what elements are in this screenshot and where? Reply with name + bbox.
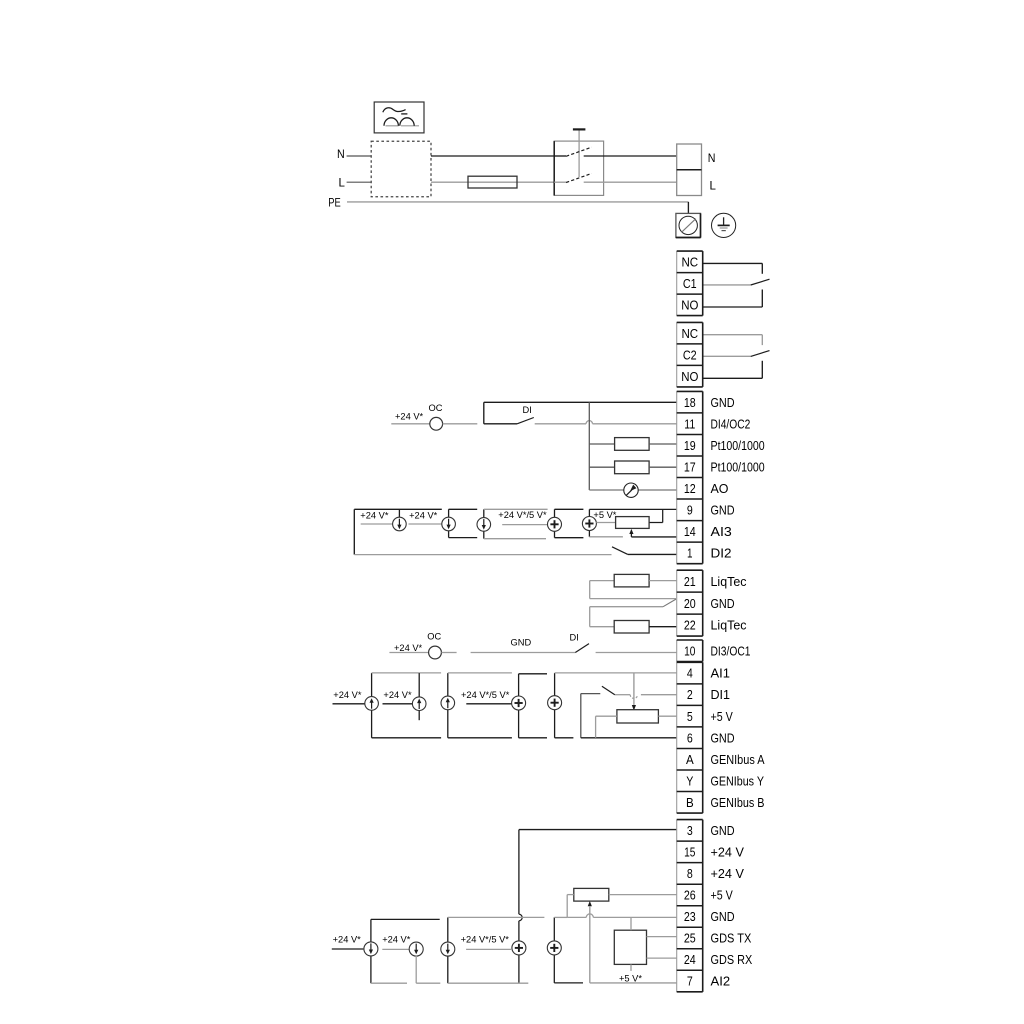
- svg-text:NO: NO: [681, 369, 698, 384]
- svg-text:LiqTec: LiqTec: [711, 618, 747, 633]
- svg-text:3: 3: [687, 823, 693, 838]
- svg-text:6: 6: [687, 730, 693, 745]
- svg-text:7: 7: [687, 974, 693, 989]
- svg-text:17: 17: [684, 459, 696, 474]
- svg-text:Pt100/1000: Pt100/1000: [711, 438, 765, 453]
- svg-text:GND: GND: [711, 596, 735, 611]
- svg-text:19: 19: [684, 438, 696, 453]
- svg-text:GDS TX: GDS TX: [711, 931, 752, 946]
- svg-text:GND: GND: [711, 730, 735, 745]
- svg-text:DI: DI: [570, 633, 579, 643]
- svg-text:GND: GND: [511, 637, 532, 647]
- svg-text:DI3/OC1: DI3/OC1: [711, 643, 751, 658]
- svg-text:+24 V: +24 V: [711, 866, 745, 881]
- svg-text:4: 4: [687, 666, 693, 681]
- svg-text:OC: OC: [427, 632, 441, 642]
- svg-text:9: 9: [687, 502, 693, 517]
- svg-text:1: 1: [687, 545, 693, 560]
- svg-text:18: 18: [684, 395, 696, 410]
- svg-text:22: 22: [684, 618, 696, 633]
- svg-text:+24 V*: +24 V*: [333, 935, 362, 945]
- svg-text:+24 V*/5 V*: +24 V*/5 V*: [461, 935, 510, 945]
- svg-text:B: B: [686, 795, 694, 810]
- svg-text:+24 V*: +24 V*: [395, 412, 424, 422]
- svg-text:DI: DI: [523, 405, 532, 415]
- svg-text:11: 11: [684, 416, 695, 431]
- svg-text:OC: OC: [429, 403, 443, 413]
- svg-text:AO: AO: [711, 481, 729, 496]
- svg-text:GND: GND: [711, 823, 735, 838]
- svg-text:GDS RX: GDS RX: [711, 952, 753, 967]
- svg-text:+5 V*: +5 V*: [593, 510, 616, 520]
- svg-text:14: 14: [684, 524, 696, 539]
- svg-text:+5 V: +5 V: [711, 888, 734, 903]
- svg-text:5: 5: [687, 709, 693, 724]
- svg-text:AI1: AI1: [711, 666, 731, 681]
- svg-text:LiqTec: LiqTec: [711, 574, 747, 589]
- svg-text:+24 V*: +24 V*: [394, 643, 423, 653]
- svg-text:L: L: [339, 175, 346, 189]
- svg-text:GENIbus A: GENIbus A: [711, 752, 765, 767]
- svg-text:21: 21: [684, 574, 696, 589]
- svg-text:+24 V*: +24 V*: [382, 935, 411, 945]
- svg-text:15: 15: [684, 844, 695, 859]
- svg-text:+24 V*: +24 V*: [333, 690, 362, 700]
- svg-text:DI2: DI2: [711, 545, 732, 560]
- svg-text:C2: C2: [683, 347, 697, 362]
- svg-text:8: 8: [687, 866, 693, 881]
- svg-text:12: 12: [684, 481, 696, 496]
- svg-text:A: A: [686, 752, 694, 767]
- svg-text:26: 26: [684, 888, 696, 903]
- svg-text:GND: GND: [711, 502, 735, 517]
- svg-text:GND: GND: [711, 909, 735, 924]
- svg-text:NC: NC: [681, 254, 698, 269]
- svg-text:10: 10: [684, 643, 695, 658]
- svg-text:NC: NC: [681, 326, 698, 341]
- svg-text:DI4/OC2: DI4/OC2: [711, 416, 751, 431]
- svg-text:GENIbus B: GENIbus B: [711, 795, 765, 810]
- svg-text:N: N: [337, 147, 345, 161]
- svg-text:20: 20: [684, 596, 696, 611]
- svg-text:Y: Y: [686, 773, 693, 788]
- svg-text:NO: NO: [681, 297, 698, 312]
- svg-text:+5 V*: +5 V*: [619, 973, 642, 983]
- svg-text:+24 V*/5 V*: +24 V*/5 V*: [498, 510, 547, 520]
- svg-text:N: N: [708, 151, 716, 165]
- svg-text:2: 2: [687, 687, 693, 702]
- svg-text:25: 25: [684, 931, 696, 946]
- svg-text:DI1: DI1: [711, 687, 731, 702]
- svg-text:23: 23: [684, 909, 696, 924]
- svg-text:Pt100/1000: Pt100/1000: [711, 459, 765, 474]
- svg-text:24: 24: [684, 952, 696, 967]
- svg-text:GENIbus Y: GENIbus Y: [711, 773, 765, 788]
- svg-text:+24 V: +24 V: [711, 844, 745, 859]
- svg-text:+24 V*: +24 V*: [409, 510, 438, 520]
- svg-text:+24 V*: +24 V*: [360, 510, 389, 520]
- svg-text:GND: GND: [711, 395, 735, 410]
- svg-text:AI2: AI2: [711, 974, 731, 989]
- svg-text:+24 V*/5 V*: +24 V*/5 V*: [461, 690, 510, 700]
- svg-text:+24 V*: +24 V*: [383, 690, 412, 700]
- svg-text:AI3: AI3: [711, 524, 732, 539]
- svg-text:PE: PE: [328, 195, 341, 209]
- svg-text:+5 V: +5 V: [711, 709, 734, 724]
- svg-text:L: L: [710, 178, 717, 192]
- svg-text:C1: C1: [683, 276, 697, 291]
